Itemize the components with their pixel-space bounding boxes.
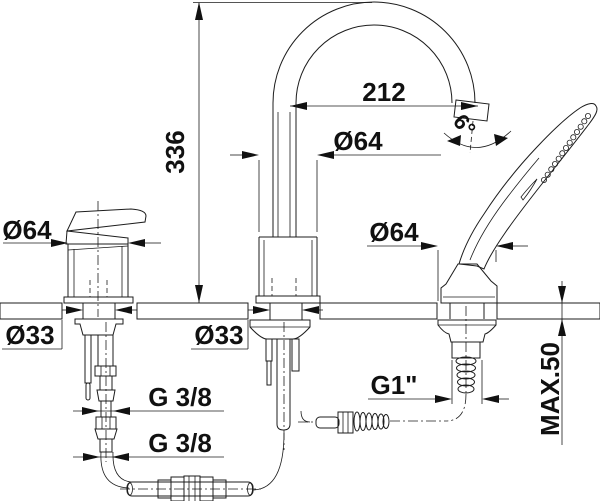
spray-nozzles: [541, 113, 590, 182]
dim-label-212: 212: [362, 77, 405, 107]
dim-label-dia33-left: Ø33: [5, 320, 54, 350]
dim-reach-212: 212: [290, 77, 478, 110]
dim-label-max50: MAX.50: [535, 342, 565, 436]
shower-underdeck-hardware: [438, 306, 496, 394]
valve-underdeck-hardware: [75, 319, 131, 488]
technical-drawing-sheet: 336 212 6°: [0, 0, 600, 501]
dim-dia33-left: Ø33: [2, 306, 137, 350]
dim-label-dia64-shower: Ø64: [369, 217, 419, 247]
dim-label-dia64-valve: Ø64: [2, 215, 52, 245]
dim-label-g38-upper: G 3/8: [148, 382, 212, 412]
valve-lever: [67, 209, 146, 231]
dim-g1: G1": [368, 360, 509, 404]
dim-label-dia33-center: Ø33: [194, 320, 243, 350]
dim-g38-upper: G 3/8: [73, 382, 224, 415]
dim-g38-lower: G 3/8: [73, 428, 224, 461]
dim-label-dia64-spout: Ø64: [333, 126, 383, 156]
dim-dia64-valve: Ø64: [2, 215, 161, 247]
dim-dia64-shower: Ø64: [367, 217, 528, 301]
flex-hose-bottom: [120, 476, 263, 501]
dim-label-g38-lower: G 3/8: [148, 428, 212, 458]
spout-base: [256, 237, 320, 303]
spout-underdeck-hardware: [250, 320, 310, 490]
lever-valve: [64, 201, 146, 317]
dim-label-6deg: 6°: [448, 109, 481, 141]
deck-cross-section: [0, 303, 600, 320]
shower-handle-outline: [459, 104, 597, 269]
bath-mixer-installation-drawing: 336 212 6°: [0, 0, 600, 501]
spout: 6°: [273, 2, 511, 237]
supply-hose-bend-center: [253, 433, 284, 490]
dim-dia33-center: Ø33: [191, 306, 323, 350]
dim-max50: MAX.50: [535, 281, 566, 445]
dim-label-g1: G1": [370, 370, 417, 400]
dim-label-336: 336: [160, 130, 190, 173]
